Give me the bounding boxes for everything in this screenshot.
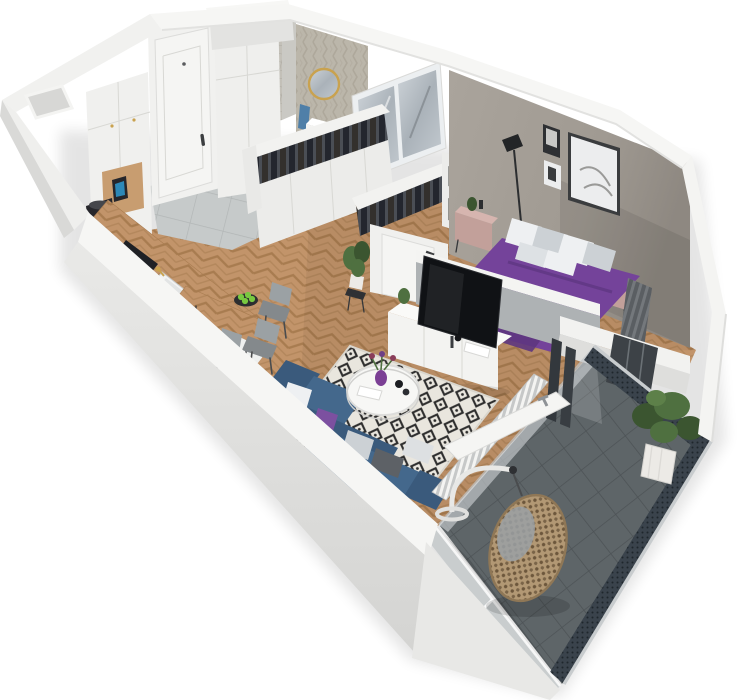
round-mirror [309,69,339,99]
bowl [403,389,410,396]
apartment-3d-floorplan-render [0,0,748,700]
cabinet-knob [132,118,135,121]
plant-small [467,197,477,211]
floorplan-svg [0,0,748,700]
apple [242,298,248,304]
entrance-door [155,28,212,198]
cabinet-knob [110,124,113,127]
apple [249,296,255,302]
bowl [395,380,403,388]
vase [375,370,387,386]
door-peephole-icon [182,62,186,66]
console-plant [398,288,410,304]
mug [455,335,462,342]
